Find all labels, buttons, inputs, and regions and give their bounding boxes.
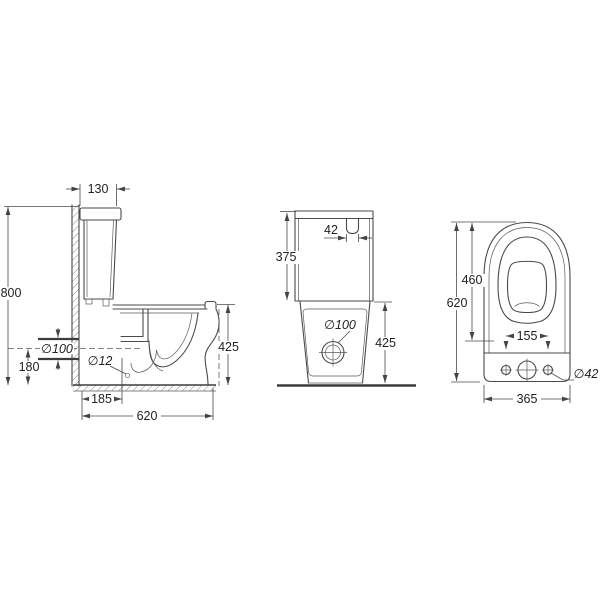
pedestal-front (300, 301, 370, 383)
dim-label-460: 460 (462, 273, 483, 287)
dim-total-length: 620 (443, 222, 516, 382)
dim-label-425-side: 425 (218, 340, 239, 354)
dim-label-620-top: 620 (447, 296, 468, 310)
dim-label-375: 375 (276, 250, 297, 264)
fixing-holes (500, 359, 554, 382)
dim-label-185: 185 (91, 392, 112, 406)
dim-tank-depth-top: 130 (66, 182, 130, 206)
toilet-dimension-diagram: 130 800 ∅100 180 ∅12 (0, 0, 600, 600)
dim-label-d42: ∅42 (574, 367, 599, 381)
dim-label-d12: ∅12 (88, 354, 113, 368)
dim-label-130: 130 (88, 182, 109, 196)
dim-fixing-hole-side: ∅12 (88, 354, 130, 378)
front-view: 42 375 ∅100 (273, 211, 416, 386)
dim-outlet-height: 180 (16, 350, 42, 385)
floor-section (73, 385, 216, 391)
pan-top-outline (484, 223, 570, 382)
dim-label-d100-front: ∅100 (324, 318, 356, 332)
top-view: 620 460 155 ∅42 365 (443, 222, 598, 406)
dim-tank-height: 375 (273, 212, 301, 301)
technical-drawing-page: 130 800 ∅100 180 ∅12 (0, 0, 600, 600)
dim-bowl-height-front: 425 (372, 302, 399, 383)
sump-outline (508, 261, 547, 312)
dim-label-155: 155 (517, 329, 538, 343)
cistern-side-profile (80, 208, 121, 306)
dim-label-42: 42 (324, 223, 338, 237)
side-view: 130 800 ∅100 180 ∅12 (0, 182, 242, 423)
flush-button (347, 219, 359, 234)
dim-side-hole-diameter: ∅42 (551, 367, 598, 381)
dim-outlet-diameter-side: ∅100 (40, 342, 74, 356)
dim-total-width: 365 (484, 385, 570, 406)
dim-label-365: 365 (517, 392, 538, 406)
dim-outlet-diameter-front: ∅100 (323, 318, 357, 343)
dim-label-425-front: 425 (375, 336, 396, 350)
bowl-side-profile (113, 302, 219, 387)
dim-label-620-side: 620 (137, 409, 158, 423)
dim-label-180: 180 (19, 360, 40, 374)
dim-fixing-hole-spacing: 155 (506, 329, 548, 349)
dim-label-800: 800 (1, 286, 22, 300)
dim-seat-length: 460 (458, 223, 494, 341)
dim-label-d100-side: ∅100 (41, 342, 73, 356)
